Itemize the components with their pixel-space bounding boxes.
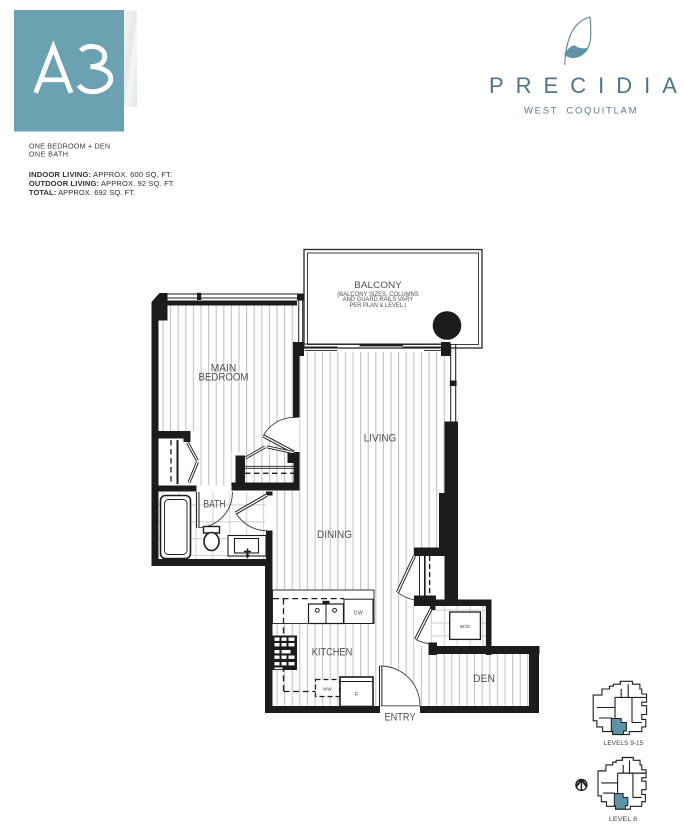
svg-text:DEN: DEN xyxy=(473,673,495,685)
svg-text:INDOOR LIVING: APPROX. 600 SQ.: INDOOR LIVING: APPROX. 600 SQ. FT. xyxy=(29,170,172,179)
svg-text:F: F xyxy=(355,692,358,698)
svg-text:BATH: BATH xyxy=(204,499,226,511)
svg-text:LEVEL 8: LEVEL 8 xyxy=(609,816,638,823)
svg-text:KITCHEN: KITCHEN xyxy=(312,647,353,659)
svg-text:LIVING: LIVING xyxy=(364,433,397,445)
svg-text:W/D: W/D xyxy=(460,624,471,630)
svg-text:LEVELS 9-15: LEVELS 9-15 xyxy=(604,740,644,747)
svg-text:OUTDOOR LIVING: APPROX. 92 SQ.: OUTDOOR LIVING: APPROX. 92 SQ. FT. xyxy=(29,179,175,188)
svg-text:WEST COQUITLAM: WEST COQUITLAM xyxy=(524,106,638,117)
svg-text:ONE BATH: ONE BATH xyxy=(29,150,69,159)
svg-text:DINING: DINING xyxy=(317,529,352,541)
svg-text:MW: MW xyxy=(323,687,332,692)
svg-text:BALCONY: BALCONY xyxy=(354,280,402,291)
svg-text:BEDROOM: BEDROOM xyxy=(199,372,249,384)
svg-text:PER PLAN & LEVEL.): PER PLAN & LEVEL.) xyxy=(350,303,407,309)
svg-text:ENTRY: ENTRY xyxy=(385,712,417,724)
svg-text:PRECIDIA: PRECIDIA xyxy=(489,73,684,98)
svg-text:DW: DW xyxy=(354,611,363,617)
svg-text:TOTAL: APPROX. 692 SQ. FT.: TOTAL: APPROX. 692 SQ. FT. xyxy=(29,188,136,197)
